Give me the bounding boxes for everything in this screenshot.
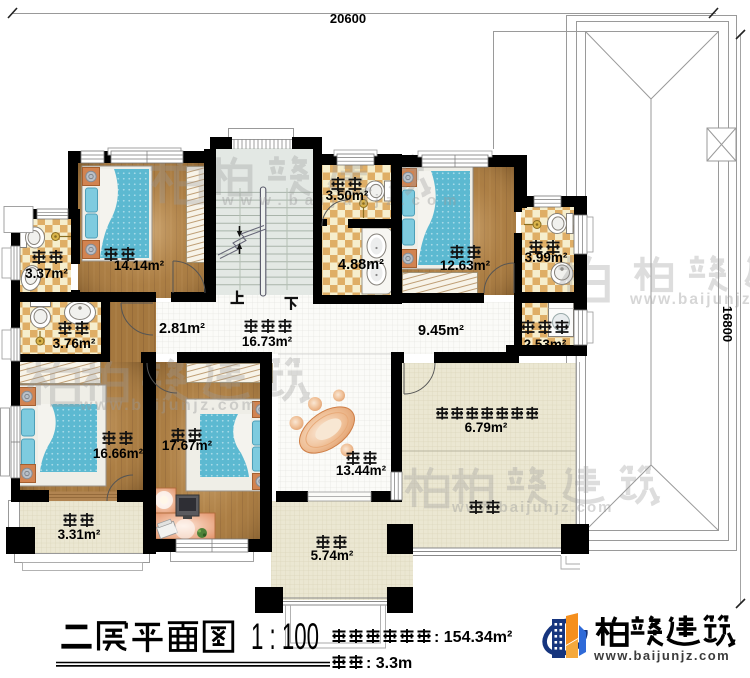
svg-text:16.66m²: 16.66m²	[93, 446, 144, 461]
svg-text:16.73m²: 16.73m²	[242, 334, 293, 349]
svg-text:3.76m²: 3.76m²	[53, 336, 96, 351]
svg-text:5.74m²: 5.74m²	[311, 548, 354, 563]
svg-text:3.50m²: 3.50m²	[326, 188, 369, 203]
svg-text:14.14m²: 14.14m²	[114, 258, 165, 273]
svg-text:13.44m²: 13.44m²	[336, 463, 387, 478]
svg-text:6.79m²: 6.79m²	[465, 420, 508, 435]
svg-text:2.53m²: 2.53m²	[524, 337, 567, 352]
svg-text:9.45m²: 9.45m²	[418, 323, 464, 339]
svg-text:20600: 20600	[330, 11, 366, 26]
svg-text:www.baijunjz.com: www.baijunjz.com	[79, 397, 258, 414]
svg-text:3.99m²: 3.99m²	[525, 250, 568, 265]
svg-text:3.31m²: 3.31m²	[58, 527, 101, 542]
svg-text:3.37m²: 3.37m²	[25, 266, 68, 281]
svg-text:12.63m²: 12.63m²	[440, 258, 491, 273]
svg-text:: 154.34m²: : 154.34m²	[434, 629, 512, 646]
svg-text:: 3.3m: : 3.3m	[366, 655, 412, 672]
svg-text:4.88m²: 4.88m²	[338, 257, 384, 273]
svg-text:www.baijunjz.com: www.baijunjz.com	[593, 648, 730, 663]
svg-text:2.81m²: 2.81m²	[159, 321, 205, 337]
svg-text:17.67m²: 17.67m²	[162, 438, 213, 453]
svg-text:www.baijunjz.co: www.baijunjz.co	[629, 291, 750, 308]
svg-text:1 : 100: 1 : 100	[251, 616, 319, 657]
svg-text:16800: 16800	[720, 306, 735, 342]
